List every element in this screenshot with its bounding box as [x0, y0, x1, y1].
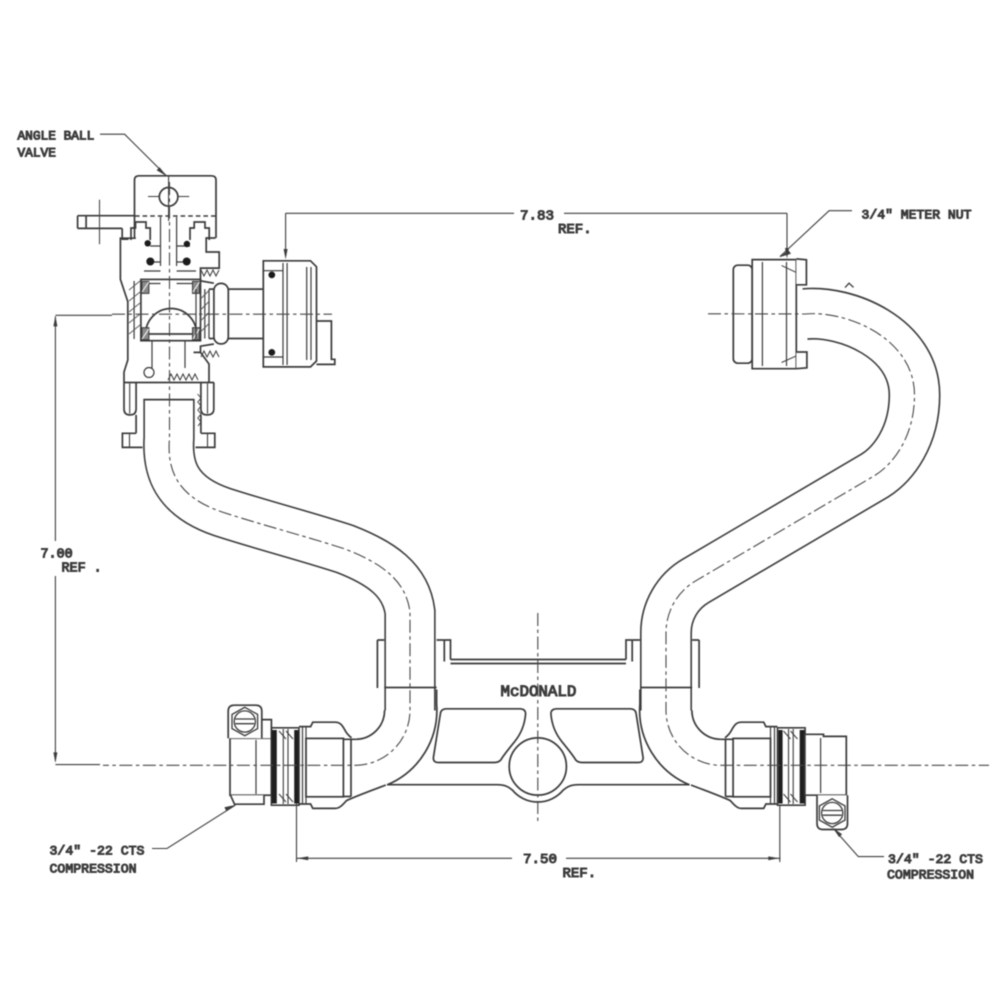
svg-text:COMPRESSION: COMPRESSION [50, 862, 137, 877]
svg-text:VALVE: VALVE [18, 146, 57, 161]
svg-text:3/4" -22 CTS: 3/4" -22 CTS [888, 852, 983, 867]
svg-text:ANGLE BALL: ANGLE BALL [18, 129, 95, 144]
svg-text:REF .: REF . [62, 562, 102, 577]
svg-text:REF.: REF. [563, 866, 597, 882]
svg-text:REF.: REF. [558, 222, 592, 238]
svg-text:COMPRESSION: COMPRESSION [887, 868, 974, 883]
svg-text:3/4" METER NUT: 3/4" METER NUT [862, 208, 972, 223]
svg-text:7.00: 7.00 [41, 548, 73, 563]
svg-text:McDONALD: McDONALD [501, 683, 577, 701]
svg-text:7.83: 7.83 [520, 209, 554, 225]
svg-text:3/4" -22 CTS: 3/4" -22 CTS [50, 844, 145, 859]
svg-text:7.50: 7.50 [523, 852, 557, 868]
